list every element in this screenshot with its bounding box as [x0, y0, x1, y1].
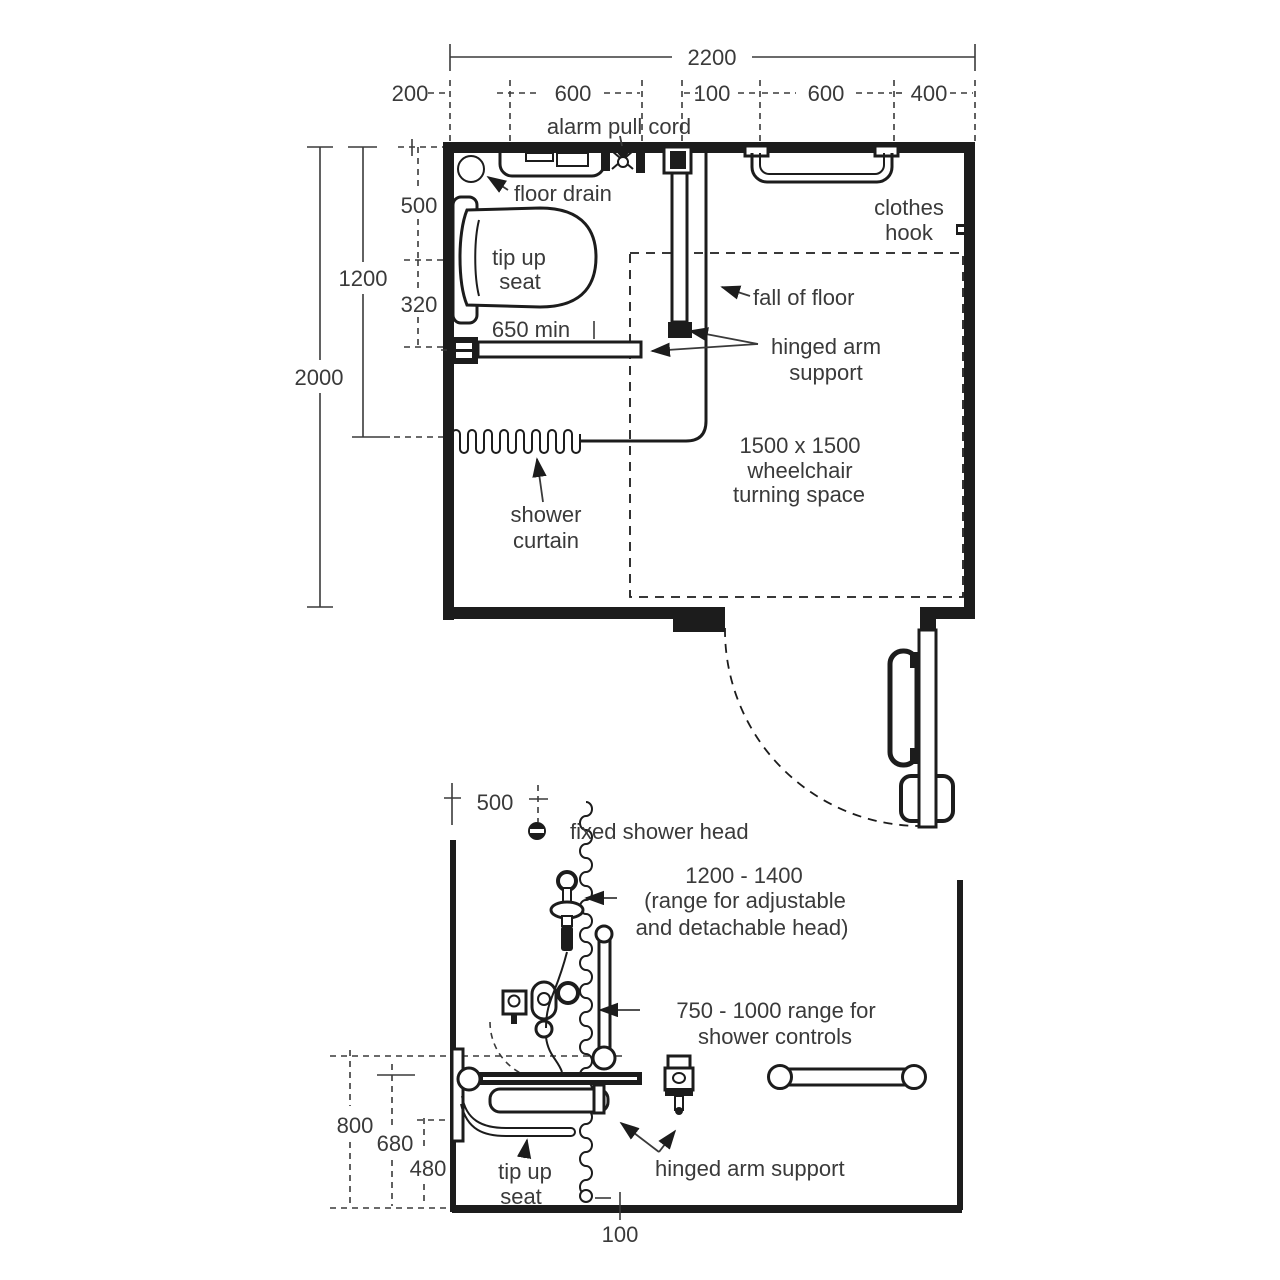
- horizontal-grab-rail: [769, 1066, 926, 1089]
- turning-space-label-2: wheelchair: [746, 458, 852, 483]
- shower-curtain-label-1: shower: [511, 502, 582, 527]
- turning-space-label-1: 1500 x 1500: [739, 433, 860, 458]
- alarm-pull-cord-label: alarm pull cord: [547, 114, 691, 139]
- diagram-page: 2200 200 600 100 600 400: [0, 0, 1280, 1280]
- elev-dim-100: 100: [595, 1192, 638, 1247]
- tip-up-seat-label-1: tip up: [492, 245, 546, 270]
- elev-height-refs: 800 680 480: [330, 1022, 623, 1208]
- plan-dim-overall: 2200: [450, 44, 975, 71]
- controls-range-label-1: 750 - 1000 range for: [676, 998, 875, 1023]
- washbasin: [500, 153, 604, 176]
- dim-100: 100: [694, 81, 731, 106]
- head-range-label-2: (range for adjustable: [644, 888, 846, 913]
- dim-200: 200: [392, 81, 429, 106]
- hinged-arm-label-1: hinged arm: [771, 334, 881, 359]
- tip-up-seat-label-2: seat: [499, 269, 541, 294]
- clothes-hook: [956, 224, 969, 235]
- door: [725, 628, 953, 827]
- clothes-hook-label-2: hook: [885, 220, 934, 245]
- tip-up-seat-elev-label-1: tip up: [498, 1159, 552, 1184]
- dim-2200: 2200: [688, 45, 737, 70]
- clothes-hook-label-1: clothes: [874, 195, 944, 220]
- head-range-label-1: 1200 - 1400: [685, 863, 802, 888]
- shower-curtain-symbol: [452, 430, 580, 453]
- fixed-shower-head-label: fixed shower head: [570, 819, 749, 844]
- dim-2000: 2000: [295, 365, 344, 390]
- shower-room-diagram: 2200 200 600 100 600 400: [0, 0, 1280, 1280]
- shower-hose: [580, 802, 592, 1202]
- head-range-label-3: and detachable head): [636, 915, 849, 940]
- plan-view: 2200 200 600 100 600 400: [295, 44, 975, 827]
- hinged-arm-support-elev: [665, 1056, 693, 1115]
- shower-curtain-label-2: curtain: [513, 528, 579, 553]
- dim-100-elev: 100: [602, 1222, 639, 1247]
- floor-drain-label: floor drain: [514, 181, 612, 206]
- handset-shower: [546, 872, 583, 1028]
- turning-space-label-3: turning space: [733, 482, 865, 507]
- dim-650-min: 650 min: [492, 317, 570, 342]
- hinged-arm-label-2: support: [789, 360, 862, 385]
- dim-1200: 1200: [339, 266, 388, 291]
- tip-up-seat-elev-label-2: seat: [500, 1184, 542, 1209]
- vertical-grab-rail: [664, 147, 692, 338]
- dim-600-a: 600: [555, 81, 592, 106]
- elev-dim-500: 500: [444, 783, 548, 825]
- controls-range-label-2: shower controls: [698, 1024, 852, 1049]
- fixed-shower-head: [528, 822, 546, 840]
- slide-rail: [593, 926, 615, 1069]
- alarm-pull-cord: [601, 136, 645, 173]
- dim-400: 400: [911, 81, 948, 106]
- plan-dim-left: 500 1200 320 2000: [295, 139, 449, 607]
- fall-of-floor-label: fall of floor: [753, 285, 855, 310]
- elevation-view: 500 800 680 480: [330, 783, 963, 1247]
- dim-680: 680: [377, 1131, 414, 1156]
- dim-500-elev: 500: [477, 790, 514, 815]
- dim-500-plan: 500: [401, 193, 438, 218]
- dim-800: 800: [337, 1113, 374, 1138]
- dim-480: 480: [410, 1156, 447, 1181]
- dim-600-b: 600: [808, 81, 845, 106]
- hinged-arm-support-elev-label: hinged arm support: [655, 1156, 845, 1181]
- dim-320: 320: [401, 292, 438, 317]
